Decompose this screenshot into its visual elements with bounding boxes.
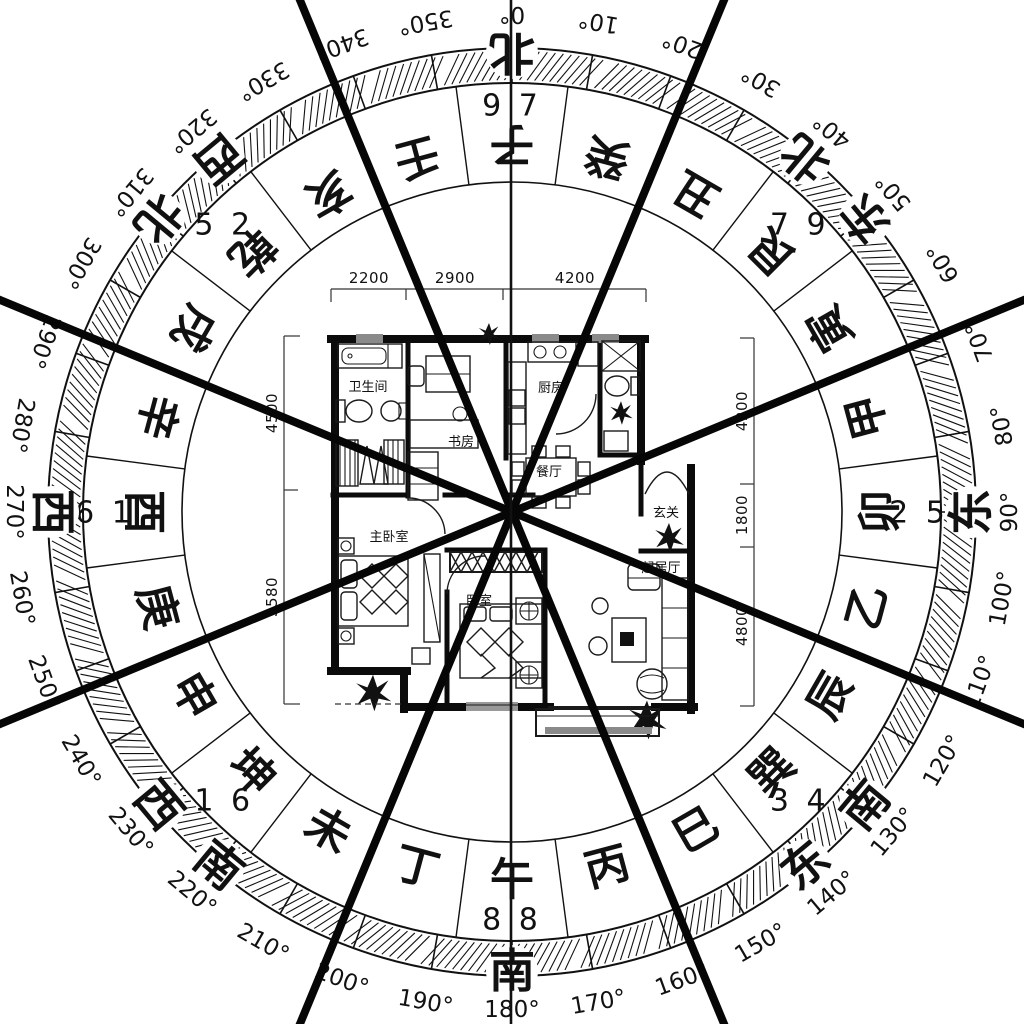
tick-minor xyxy=(549,941,565,972)
tick-minor xyxy=(467,52,483,82)
room-label-dining: 餐厅 xyxy=(536,464,562,480)
tick-minor xyxy=(721,119,752,135)
mountain-label: 乙 xyxy=(837,579,898,635)
tick-minor xyxy=(874,277,908,278)
bathroom-2 xyxy=(602,341,640,451)
tick-minor xyxy=(541,942,557,972)
tick-minor xyxy=(258,882,289,897)
tick-minor xyxy=(323,90,328,124)
dim-top-1: 2200 xyxy=(349,269,389,287)
tick-minor xyxy=(257,128,258,162)
tick-minor xyxy=(557,940,572,971)
tick-minor xyxy=(897,316,931,320)
tick-minor xyxy=(897,708,914,738)
tick-minor xyxy=(52,541,82,557)
mountain-label: 庚 xyxy=(126,579,187,635)
tick-major xyxy=(884,727,914,745)
flying-star-pair: 6 1 xyxy=(75,496,135,531)
tick-minor xyxy=(760,866,761,900)
degree-label: 150° xyxy=(731,918,792,968)
tick-minor xyxy=(613,929,624,962)
mountain-label: 寅 xyxy=(798,296,864,360)
flying-star-pair: 5 2 xyxy=(194,208,254,243)
tick-minor xyxy=(695,103,725,121)
tick-minor xyxy=(766,861,767,895)
degree-label: 190° xyxy=(396,985,455,1020)
tick-minor xyxy=(100,718,134,721)
mountain-label: 巳 xyxy=(664,798,728,864)
sector-divider xyxy=(87,456,185,469)
tick-minor xyxy=(119,272,135,303)
tick-minor xyxy=(469,943,490,971)
sector-divider xyxy=(456,87,469,185)
tick-minor xyxy=(53,557,84,572)
tick-major xyxy=(110,280,140,298)
dim-top-2: 2900 xyxy=(435,269,475,287)
tick-minor xyxy=(893,309,927,313)
living-room xyxy=(589,564,688,740)
side-table xyxy=(412,648,430,664)
tick-minor xyxy=(136,245,149,277)
tick-minor xyxy=(866,264,900,265)
tick-minor xyxy=(900,701,917,731)
tick-minor xyxy=(812,194,846,201)
degree-label: 120° xyxy=(918,731,968,792)
tick-minor xyxy=(286,897,316,914)
tick-minor xyxy=(93,704,127,708)
dim-top-3: 4200 xyxy=(555,269,595,287)
sector-divider xyxy=(555,87,568,185)
toilet xyxy=(346,400,372,422)
tick-minor xyxy=(904,695,922,725)
tick-minor xyxy=(943,535,971,556)
tick-minor xyxy=(62,613,95,624)
nightstand xyxy=(338,628,354,644)
mountain-label: 壬 xyxy=(389,126,445,187)
degree-label: 30° xyxy=(737,59,785,102)
room-label-study: 书房 xyxy=(448,434,474,450)
luopan-floorplan-diagram: 2200 2900 4200 4500 5580 4200 1800 4800 xyxy=(0,0,1024,1024)
washbasin xyxy=(381,401,401,421)
tick-minor xyxy=(300,904,330,922)
exhaust-fan-icon xyxy=(610,401,633,424)
tick-minor xyxy=(184,828,218,836)
sector-divider xyxy=(456,839,469,937)
tick-minor xyxy=(747,874,748,908)
tick-minor xyxy=(272,890,303,906)
tick-major xyxy=(727,884,745,914)
room-label-bathroom: 卫生间 xyxy=(348,380,387,395)
degree-label: 260° xyxy=(4,569,39,628)
tick-minor xyxy=(115,747,149,748)
tick-minor xyxy=(878,741,892,773)
tick-minor xyxy=(178,823,212,830)
tick-minor xyxy=(277,115,278,149)
direction-label: 西 xyxy=(26,489,80,535)
degree-label: 240° xyxy=(56,731,106,792)
tick-minor xyxy=(90,697,124,702)
tick-minor xyxy=(701,106,731,123)
tick-minor xyxy=(60,605,92,617)
tick-minor xyxy=(734,127,765,142)
sector-divider xyxy=(555,839,568,937)
mountain-label: 丙 xyxy=(579,837,635,898)
tick-major xyxy=(884,280,914,298)
tick-minor xyxy=(309,96,313,130)
dim-right-2: 1800 xyxy=(733,495,751,535)
entry-plant xyxy=(655,523,684,553)
tick-minor xyxy=(307,907,336,925)
tick-minor xyxy=(303,100,306,134)
tick-minor xyxy=(874,747,887,779)
flying-star-pair: 2 5 xyxy=(889,496,949,531)
tick-minor xyxy=(861,257,895,258)
degree-label: 350° xyxy=(396,4,455,39)
tick-minor xyxy=(535,53,556,81)
tick-minor xyxy=(711,893,715,927)
tick-minor xyxy=(890,721,906,752)
mountain-label: 亥 xyxy=(296,160,360,226)
flying-star-pair: 7 9 xyxy=(770,208,830,243)
room-label-master-bedroom: 主卧室 xyxy=(369,529,408,545)
tick-minor xyxy=(941,459,972,475)
mountain-label: 丁 xyxy=(389,837,445,898)
scene-svg: 2200 2900 4200 4500 5580 4200 1800 4800 xyxy=(0,0,1024,1024)
tick-minor xyxy=(124,760,158,761)
tick-minor xyxy=(415,59,427,91)
mountain-label: 丑 xyxy=(664,160,728,226)
coffee-table xyxy=(592,598,608,614)
tick-major xyxy=(280,110,298,140)
tick-minor xyxy=(933,415,965,427)
mountain-label: 戌 xyxy=(160,296,226,360)
tick-minor xyxy=(688,99,717,117)
tick-minor xyxy=(293,900,323,917)
sector-divider xyxy=(839,555,937,568)
dimension-left: 4500 5580 xyxy=(263,336,300,704)
mountain-label: 申 xyxy=(160,664,226,728)
tick-minor xyxy=(459,52,475,83)
tick-minor xyxy=(103,300,121,330)
tick-minor xyxy=(107,733,141,735)
degree-label: 280° xyxy=(4,396,39,455)
degree-label: 270° xyxy=(1,484,27,539)
tick-minor xyxy=(807,188,841,196)
tick-minor xyxy=(882,290,916,292)
sofa xyxy=(662,578,688,700)
degree-label: 100° xyxy=(985,569,1020,628)
tick-major xyxy=(727,110,745,140)
degree-label: 60° xyxy=(922,239,965,287)
tick-minor xyxy=(110,286,127,316)
tick-minor xyxy=(132,252,146,284)
tick-minor xyxy=(931,407,963,419)
kitchen xyxy=(508,342,598,454)
flying-star-pair: 3 4 xyxy=(770,783,830,818)
mountain-label: 癸 xyxy=(579,126,635,187)
tick-minor xyxy=(708,110,738,127)
coffee-table xyxy=(589,637,607,655)
tick-minor xyxy=(106,293,123,323)
tick-minor xyxy=(900,323,934,328)
tick-minor xyxy=(882,734,897,765)
tick-minor xyxy=(53,469,81,490)
tick-minor xyxy=(597,933,609,965)
degree-label: 330° xyxy=(232,56,293,106)
tick-minor xyxy=(290,107,292,141)
mountain-label: 甲 xyxy=(837,389,898,445)
mountain-label: 未 xyxy=(296,798,360,864)
sector-divider xyxy=(839,456,937,469)
tick-minor xyxy=(929,400,962,411)
degree-label: 10° xyxy=(576,5,621,38)
tick-minor xyxy=(264,124,265,158)
tick-minor xyxy=(939,444,970,459)
tick-minor xyxy=(747,136,779,149)
tick-major xyxy=(110,727,140,745)
toilet xyxy=(605,376,629,396)
degree-label: 210° xyxy=(232,918,293,968)
nightstand xyxy=(338,538,354,554)
tick-minor xyxy=(697,900,702,934)
mountain-label: 辛 xyxy=(126,389,187,445)
door-arc xyxy=(408,498,445,534)
mountain-label: 辰 xyxy=(798,664,864,728)
tv xyxy=(620,632,634,646)
degree-label: 90° xyxy=(997,492,1023,533)
stove xyxy=(528,342,576,362)
tick-minor xyxy=(128,766,162,767)
tick-minor xyxy=(407,60,419,92)
tick-minor xyxy=(444,54,459,85)
tick-minor xyxy=(52,549,83,565)
degree-label: 170° xyxy=(569,985,628,1020)
plant xyxy=(356,675,391,711)
dimension-right: 4200 1800 4800 xyxy=(733,338,754,706)
entry-door-arc xyxy=(645,472,689,494)
tick-minor xyxy=(252,878,284,892)
degree-label: 300° xyxy=(56,232,106,293)
tick-minor xyxy=(942,467,972,483)
cabinet xyxy=(604,431,628,451)
tick-minor xyxy=(99,307,117,336)
tick-minor xyxy=(718,890,721,924)
tick-minor xyxy=(245,874,277,887)
tick-minor xyxy=(907,688,925,717)
tick-minor xyxy=(127,258,142,289)
tick-minor xyxy=(940,452,971,467)
tick-minor xyxy=(605,931,617,963)
sector-divider xyxy=(87,555,185,568)
radiator-mark xyxy=(356,334,383,343)
tick-minor xyxy=(316,93,320,127)
study xyxy=(408,356,478,500)
tick-minor xyxy=(704,897,708,931)
tick-minor xyxy=(565,939,580,970)
tick-minor xyxy=(54,565,85,580)
room-label-entry: 玄关 xyxy=(653,506,679,521)
tick-major xyxy=(280,884,298,914)
tick-minor xyxy=(452,53,467,84)
tick-minor xyxy=(890,303,924,306)
degree-label: 80° xyxy=(986,403,1019,448)
tick-minor xyxy=(96,711,130,715)
tick-minor xyxy=(733,882,735,916)
tick-minor xyxy=(741,132,773,146)
tick-minor xyxy=(400,62,411,95)
direction-label: 东 xyxy=(944,489,998,535)
tick-minor xyxy=(59,597,91,609)
flying-star-pair: 1 6 xyxy=(194,783,254,818)
